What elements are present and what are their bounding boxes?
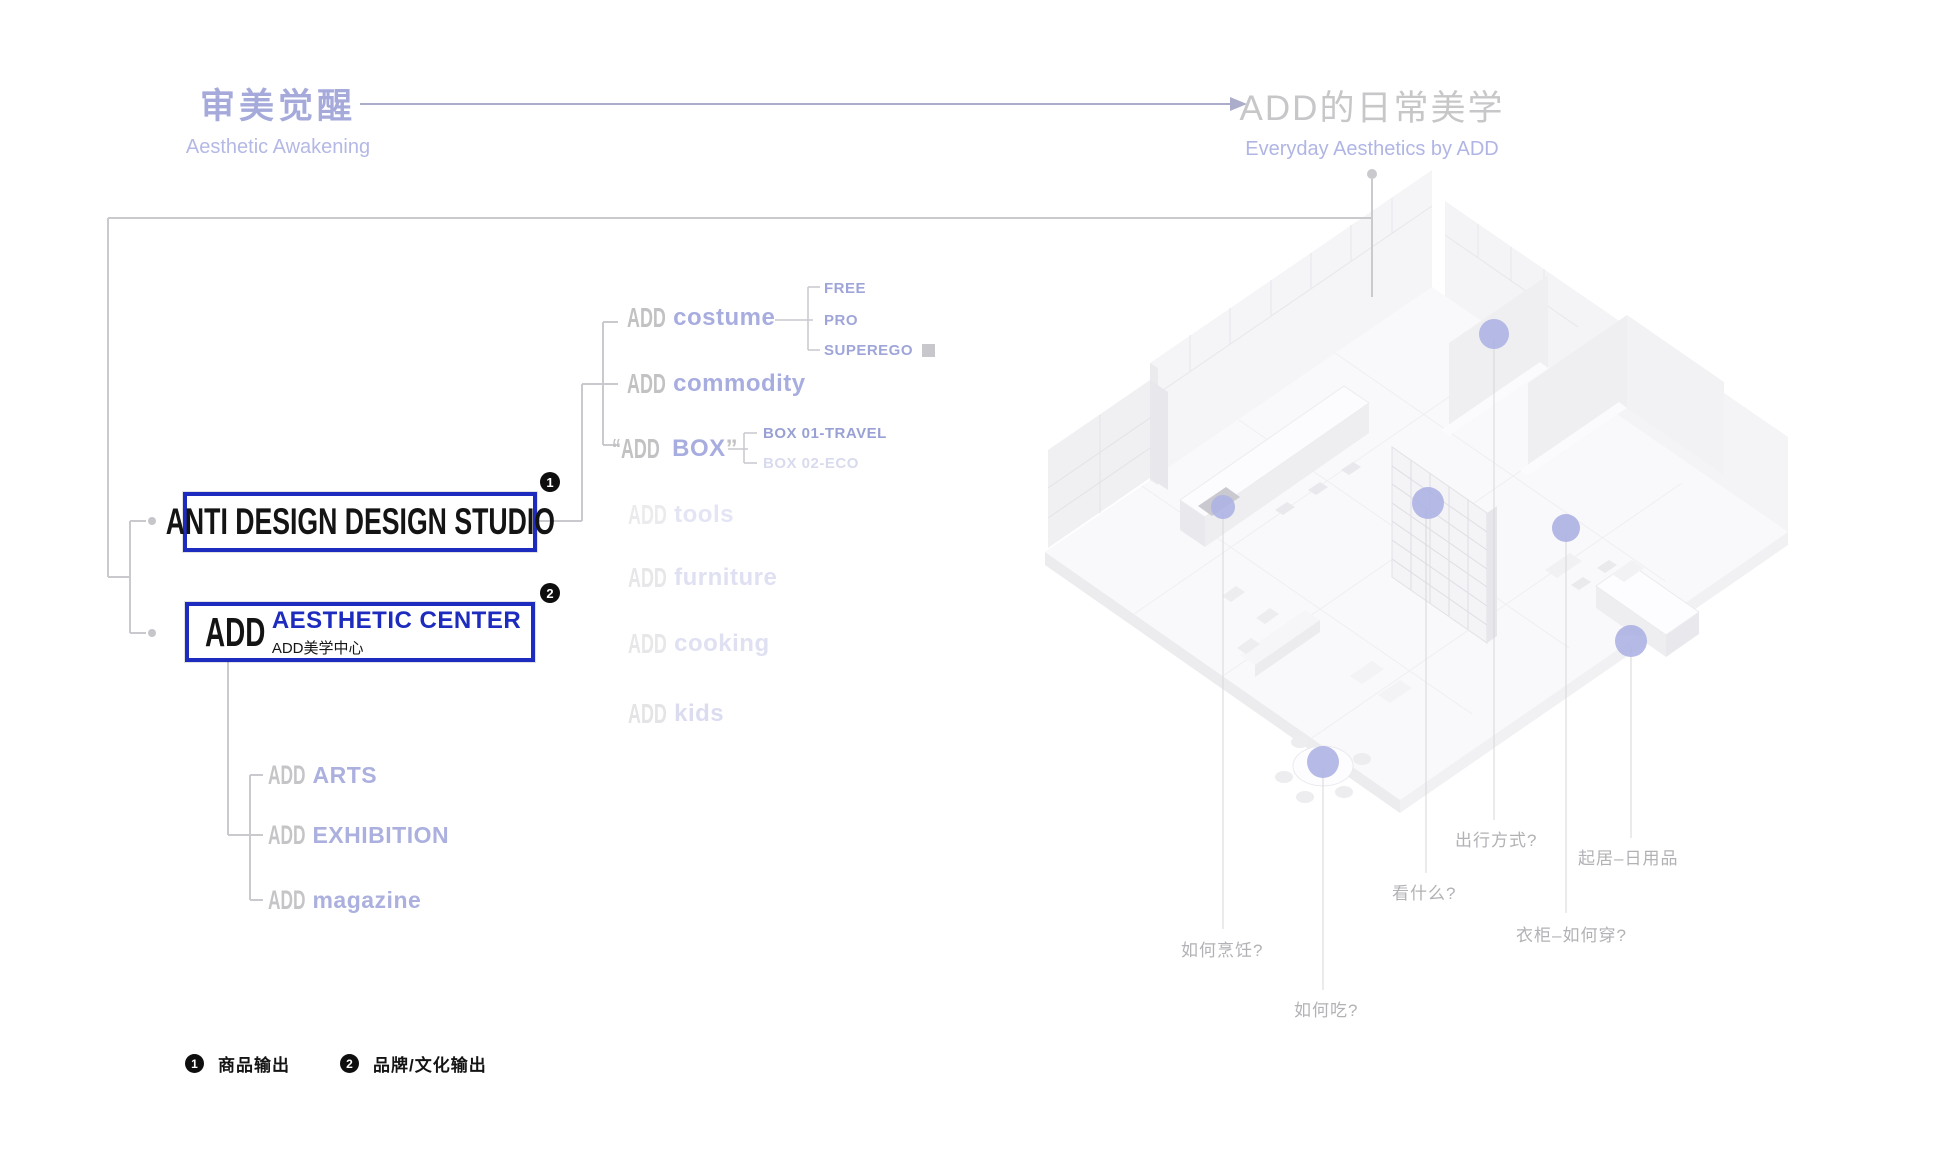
costume-child-pro: PRO (824, 311, 858, 329)
studio-box: ANTI DESIGN DESIGN STUDIO (183, 492, 537, 552)
center-box-subtitle: ADD美学中心 (272, 637, 521, 658)
costume-child-free: FREE (824, 279, 866, 297)
hotspot-dot (1479, 319, 1509, 349)
center-box-title: AESTHETIC CENTER (272, 607, 521, 635)
legend-item-1: 1 商品输出 (185, 1051, 290, 1076)
product-costume-prefix: ADD (627, 302, 666, 334)
culture-magazine-prefix: ADD (268, 885, 305, 916)
product-commodity: ADD commodity (627, 369, 806, 399)
product-tools-prefix: ADD (628, 499, 667, 531)
fp-label-cooking: 如何烹饪? (1181, 936, 1263, 961)
legend-item-2: 2 品牌/文化输出 (340, 1051, 487, 1076)
header-left-subtitle: Aesthetic Awakening (158, 136, 398, 159)
product-furniture-label: furniture (674, 564, 777, 592)
badge-1: 1 (540, 472, 560, 492)
hotspot-dot (1615, 625, 1647, 657)
legend-label-2: 品牌/文化输出 (373, 1051, 487, 1076)
fp-label-watching: 看什么? (1392, 879, 1456, 904)
aesthetic-center-box: ADD AESTHETIC CENTER ADD美学中心 (185, 602, 535, 662)
product-tools-label: tools (674, 501, 734, 529)
product-furniture: ADD furniture (628, 563, 777, 593)
box-child-eco: BOX 02-ECO (763, 454, 859, 472)
product-tools: ADD tools (628, 500, 734, 530)
header-right: ADD的日常美学 Everyday Aesthetics by ADD (1212, 80, 1532, 161)
culture-magazine: ADD magazine (268, 885, 421, 915)
infographic-canvas: 审美觉醒 Aesthetic Awakening ADD的日常美学 Everyd… (0, 0, 1938, 1152)
product-cooking-prefix: ADD (628, 628, 667, 660)
product-box-label: BOX (672, 435, 726, 463)
culture-exhibition: ADD EXHIBITION (268, 820, 449, 850)
legend-label-1: 商品输出 (218, 1051, 290, 1076)
costume-child-superego: SUPEREGO (824, 341, 935, 359)
badge-2: 2 (540, 583, 560, 603)
fp-label-wardrobe: 衣柜–如何穿? (1516, 921, 1627, 946)
culture-magazine-label: magazine (312, 887, 421, 914)
fp-label-travel: 出行方式? (1455, 826, 1537, 851)
product-costume: ADD costume (627, 303, 775, 333)
legend-badge-2: 2 (340, 1054, 359, 1073)
header-right-subtitle: Everyday Aesthetics by ADD (1212, 138, 1532, 161)
product-box-prefix: “ADD (612, 433, 660, 465)
box-child-travel: BOX 01-TRAVEL (763, 424, 887, 442)
product-cooking: ADD cooking (628, 629, 770, 659)
product-box: “ADD BOX ” (612, 434, 738, 464)
product-furniture-prefix: ADD (628, 562, 667, 594)
hotspot-dot (1412, 487, 1444, 519)
studio-box-label: ANTI DESIGN DESIGN STUDIO (165, 501, 554, 543)
product-costume-label: costume (673, 304, 775, 332)
product-commodity-label: commodity (673, 370, 806, 398)
culture-arts-label: ARTS (312, 762, 377, 789)
diagram-graphics (0, 0, 1938, 1152)
product-cooking-label: cooking (674, 630, 770, 658)
hotspot-dot (1552, 514, 1580, 542)
product-kids-label: kids (674, 700, 724, 728)
hotspot-dot (1211, 495, 1235, 519)
culture-arts: ADD ARTS (268, 760, 377, 790)
header-right-title: ADD的日常美学 (1212, 80, 1532, 131)
header-left: 审美觉醒 Aesthetic Awakening (158, 78, 398, 159)
flow-arrow (360, 97, 1247, 111)
product-kids-prefix: ADD (628, 698, 667, 730)
culture-arts-prefix: ADD (268, 760, 305, 791)
legend-badge-1: 1 (185, 1054, 204, 1073)
hotspot-dot (1307, 746, 1339, 778)
fp-label-living: 起居–日用品 (1578, 844, 1678, 869)
product-box-suffix: ” (726, 435, 738, 463)
costume-child-superego-label: SUPEREGO (824, 342, 913, 359)
culture-exhibition-prefix: ADD (268, 820, 305, 851)
product-commodity-prefix: ADD (627, 368, 666, 400)
product-kids: ADD kids (628, 699, 724, 729)
header-left-title: 审美觉醒 (158, 78, 398, 129)
superego-square-icon (922, 344, 935, 357)
culture-exhibition-label: EXHIBITION (312, 822, 449, 849)
center-box-prefix: ADD (205, 609, 265, 656)
fp-label-eating: 如何吃? (1294, 996, 1358, 1021)
